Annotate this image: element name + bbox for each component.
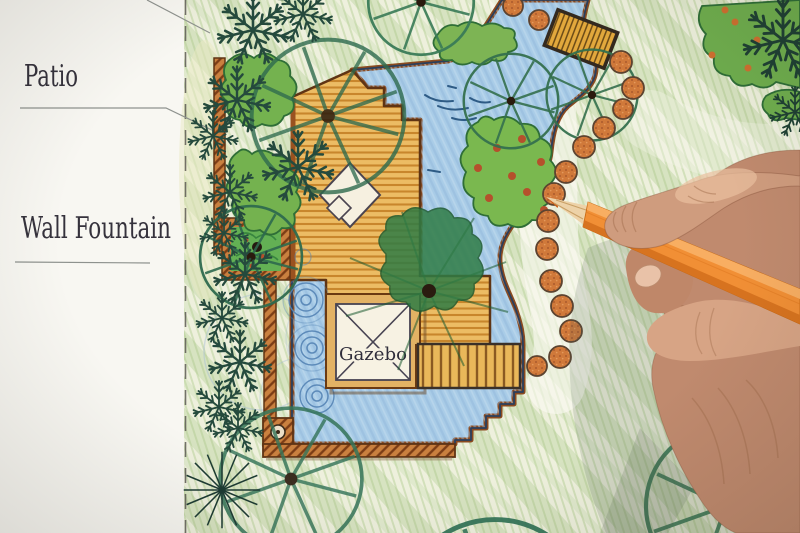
plan-drawing: Patio Wall Fountain [0,0,800,533]
stepping-stone [622,77,644,99]
stepping-stone [503,0,523,16]
grass-tuft-icon [184,452,261,529]
stepping-stone [610,51,632,73]
gazebo: Gazebo [326,294,425,393]
boardwalk-steps [415,344,520,388]
stepping-stone [527,356,547,376]
gazebo-label: Gazebo [339,344,407,365]
stepping-stone [593,117,615,139]
landscape-plan-photo: Patio Wall Fountain [0,0,800,533]
label-patio: Patio [24,59,78,94]
paper-highlight [650,120,800,154]
shrub [433,22,516,65]
stepping-stone [540,270,562,292]
tree-trunk [422,284,436,298]
stepping-stone [551,295,573,317]
stepping-stone [573,136,595,158]
shrub [220,53,296,127]
label-wall-fountain: Wall Fountain [21,211,171,246]
stepping-stone [613,99,633,119]
stepping-stone [555,161,577,183]
stepping-stone [537,210,559,232]
stepping-stone [549,346,571,368]
stepping-stone [529,10,549,30]
stepping-stone [536,238,558,260]
